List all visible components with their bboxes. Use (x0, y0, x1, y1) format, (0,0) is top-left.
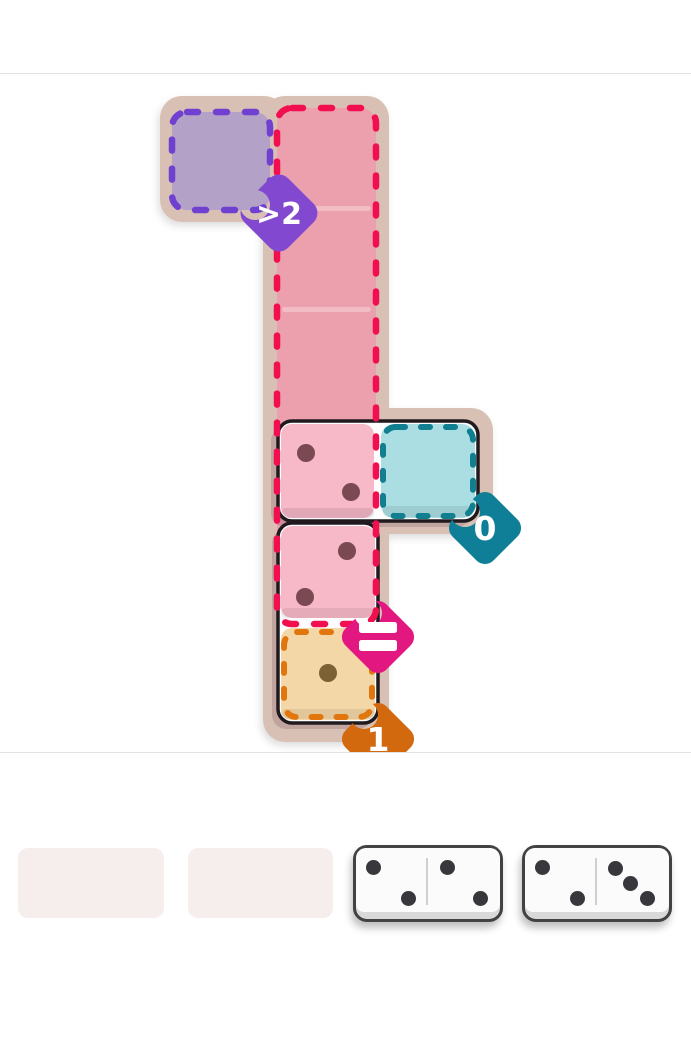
equal-bar (359, 622, 397, 633)
domino-half-2 (281, 424, 374, 518)
tray-empty-slot-1[interactable] (18, 848, 164, 918)
tray-domino-2-2[interactable] (353, 845, 503, 922)
teal-zone-cell[interactable] (381, 424, 475, 518)
pip (338, 542, 356, 560)
equal-bar (359, 640, 397, 651)
board: >2 0 = 1 (0, 0, 691, 752)
pip (623, 876, 638, 891)
domino-half-shading (281, 508, 374, 518)
pip (296, 588, 314, 606)
red-zone-cell-separator (282, 307, 371, 312)
bottom-divider (0, 752, 691, 753)
tile-divider (595, 858, 597, 905)
pip (297, 444, 315, 462)
badge-label: 1 (367, 720, 390, 752)
pip (570, 891, 585, 906)
tile-divider (426, 858, 428, 905)
pip (640, 891, 655, 906)
pip (366, 860, 381, 875)
pip (608, 861, 623, 876)
game-page: >2 0 = 1 (0, 0, 691, 1053)
badge-label: >2 (256, 197, 302, 232)
pip (440, 860, 455, 875)
tray-empty-slot-2[interactable] (188, 848, 333, 918)
pip (342, 483, 360, 501)
domino-half-2 (281, 526, 375, 618)
pip (473, 891, 488, 906)
pip (535, 860, 550, 875)
tray-domino-2-3[interactable] (522, 845, 672, 922)
pip (401, 891, 416, 906)
badge-label: 0 (474, 509, 497, 548)
pip (319, 664, 337, 682)
